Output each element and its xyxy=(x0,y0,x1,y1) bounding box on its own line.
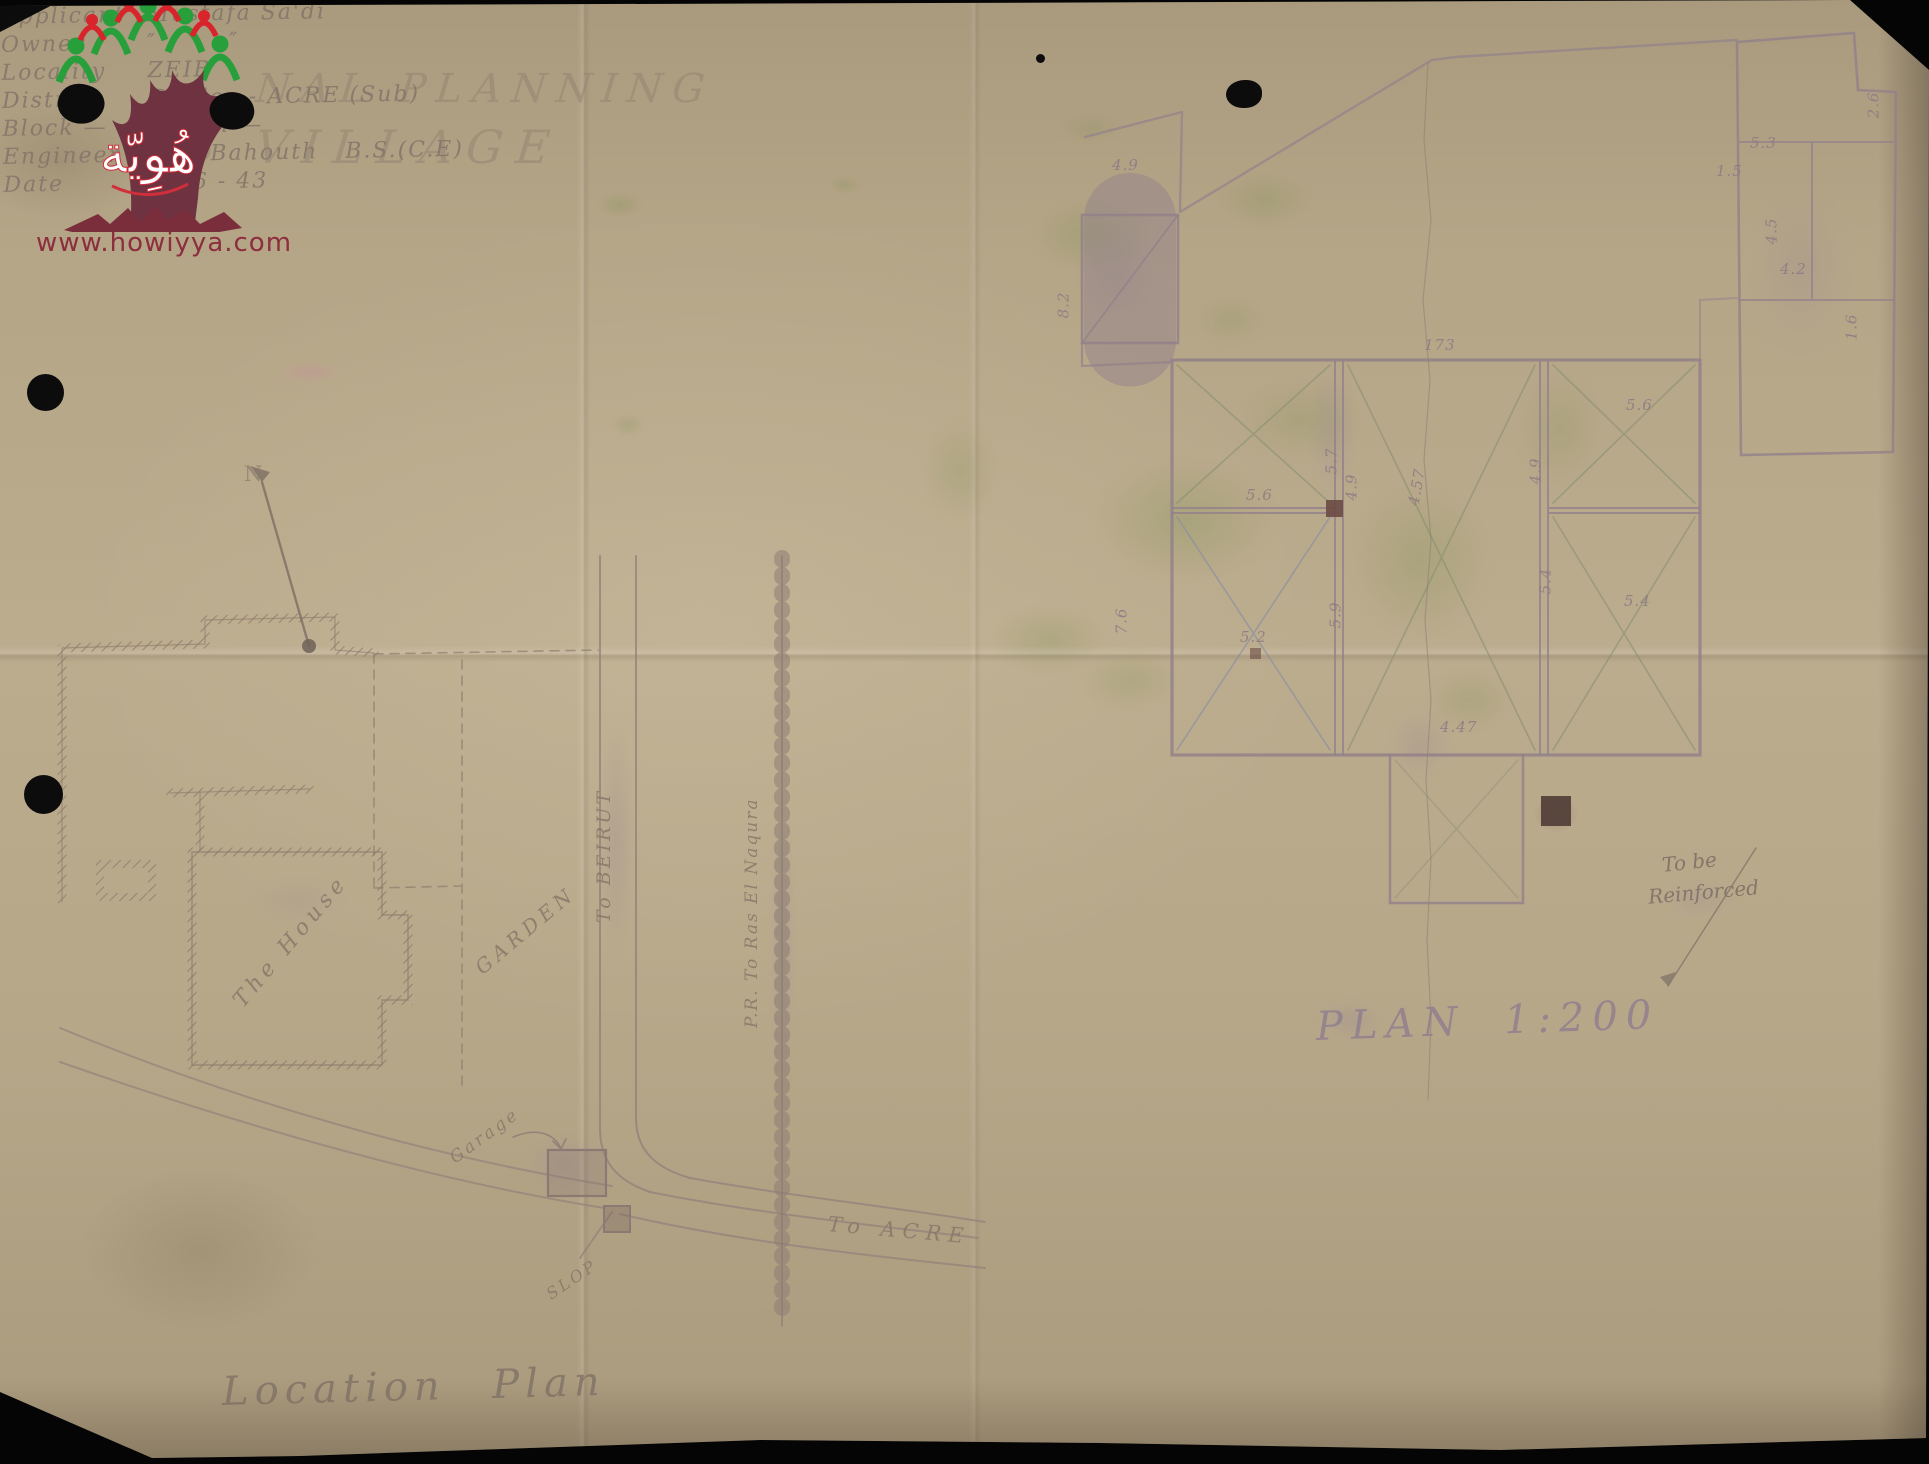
dimension-label: 4.9 xyxy=(1112,156,1139,174)
dimension-label: 5.6 xyxy=(1246,486,1273,504)
punch-hole xyxy=(24,775,63,814)
paper-sheet: NAL PLANNING IB VILLAGE Applicant Mustaf… xyxy=(0,0,1929,1464)
dimension-label: 4.2 xyxy=(1780,260,1807,278)
dimension-label: 7.6 xyxy=(1112,608,1130,635)
dimension-label: 5.6 xyxy=(1626,396,1653,414)
dimension-label: 5.9 xyxy=(1326,602,1344,629)
dimension-label: 5.4 xyxy=(1536,568,1554,595)
dimension-label: 5.2 xyxy=(1240,628,1267,646)
dimension-label: 4.5 xyxy=(1762,218,1780,245)
dimension-label: 1.5 xyxy=(1716,162,1743,180)
dimension-label: 5.7 xyxy=(1322,448,1340,475)
dimension-label: 4.9 xyxy=(1526,458,1544,485)
dimension-label: 173 xyxy=(1424,336,1456,354)
dimension-label: 2.6 xyxy=(1864,92,1882,119)
dimension-label: 5.3 xyxy=(1750,134,1777,152)
logo-arabic-wordmark: هُوِيّة xyxy=(100,125,197,193)
punch-hole xyxy=(27,374,64,411)
dimension-label: 5.4 xyxy=(1624,592,1651,610)
dimension-label: 8.2 xyxy=(1054,292,1072,319)
logo-crown-figures xyxy=(59,0,237,82)
dimension-label: 4.9 xyxy=(1342,474,1360,501)
scanned-plan-document: NAL PLANNING IB VILLAGE Applicant Mustaf… xyxy=(0,0,1929,1464)
ink-blob xyxy=(1226,80,1262,108)
dimension-label: 4.57 xyxy=(1405,467,1429,507)
dimension-label: 1.6 xyxy=(1842,314,1860,341)
dimension-label: 4.47 xyxy=(1440,718,1477,736)
ink-dot xyxy=(1036,54,1045,63)
floor-plan-dimensions: 4.98.21735.65.65.74.94.574.95.25.95.45.4… xyxy=(0,0,1929,1464)
watermark-url: www.howiyya.com xyxy=(36,228,292,258)
